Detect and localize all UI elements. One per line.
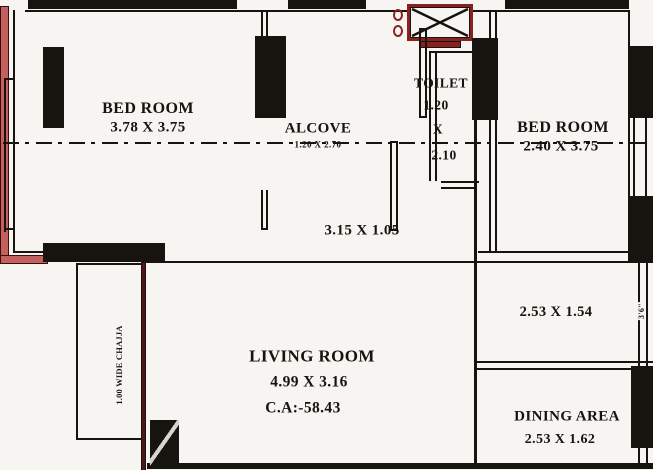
wall-pier-top-3 xyxy=(505,0,629,9)
wall-toilet-right xyxy=(474,120,477,182)
window-cap-bottom xyxy=(4,228,15,230)
chajja-label: 1.00 WIDE CHAJJA xyxy=(115,325,124,404)
door-swing-icon xyxy=(393,25,403,37)
wall-bottom-outer xyxy=(147,463,653,469)
wall-bed2-left-b xyxy=(495,10,497,253)
side-dimension-label: 3'6" xyxy=(638,302,646,320)
wall-alcove-right-upper xyxy=(419,28,421,118)
wall-pier-bed1-alcove xyxy=(255,36,286,118)
wall-cap xyxy=(419,116,427,118)
room-label-toilet: TOILET xyxy=(414,76,468,90)
room-label-dining: DINING AREA xyxy=(514,410,620,425)
wall-pier-top-1 xyxy=(28,0,237,9)
wall-alcove-right-lower-b xyxy=(396,141,398,231)
room-dims-toilet-length: 2.10 xyxy=(431,148,456,162)
wall-bedroom-left-outer xyxy=(13,10,15,253)
entrance-door-pier xyxy=(150,420,179,467)
room-dims-toilet-width: 1.20 xyxy=(423,98,448,112)
wall-pier-dining-right xyxy=(631,366,653,448)
wall-pier-bed2-right-top xyxy=(630,46,653,118)
wall-bed1-alcove-lower xyxy=(261,190,263,230)
wall-bed2-bottom xyxy=(478,251,653,253)
room-dims-dining: 2.53 X 1.62 xyxy=(525,433,596,447)
room-label-bedroom-right: BED ROOM xyxy=(517,120,609,136)
room-dims-bedroom-right: 2.40 X 3.75 xyxy=(523,140,598,155)
room-dims-passage: 3.15 X 1.05 xyxy=(324,224,399,239)
window-bed2-right xyxy=(633,118,635,196)
wall-cap xyxy=(261,228,268,230)
wall-toilet-bottom-b xyxy=(441,187,475,189)
chajja-top-edge xyxy=(76,263,142,265)
wall-pier-top-2 xyxy=(288,0,366,9)
room-dims-store: 2.53 X 1.54 xyxy=(520,305,593,320)
window-bed2-right-b xyxy=(645,118,647,196)
chajja-bottom-edge xyxy=(76,438,142,440)
wall-pier-bedroom-left-bottom xyxy=(43,243,165,262)
room-label-bedroom-left: BED ROOM xyxy=(102,101,194,117)
chajja-left-edge xyxy=(76,263,78,440)
door-swing-icon xyxy=(393,9,403,21)
room-dims-living: 4.99 X 3.16 xyxy=(270,374,348,390)
wall-store-dining-b xyxy=(477,368,653,370)
wall-bed1-alcove-lower-b xyxy=(266,190,268,230)
room-dims-alcove: 1.20 X 2.70 xyxy=(295,141,342,150)
outer-wall-red-bottom-left xyxy=(0,255,48,264)
wardrobe-pier xyxy=(43,47,64,128)
room-label-living: LIVING ROOM xyxy=(249,348,375,365)
wall-bed2-left xyxy=(489,10,491,253)
room-label-alcove: ALCOVE xyxy=(285,122,352,137)
window-cap-top xyxy=(4,78,15,80)
room-dims-toilet-sep: X xyxy=(433,122,443,136)
wall-store-dining xyxy=(477,361,653,363)
room-dims-bedroom-left: 3.78 X 3.75 xyxy=(110,121,185,136)
wall-pier-bed2-right-bottom xyxy=(630,196,653,262)
floor-plan: BED ROOM 3.78 X 3.75 ALCOVE 1.20 X 2.70 … xyxy=(0,0,653,470)
wall-cap xyxy=(419,28,427,30)
wall-living-dining-separator xyxy=(474,181,477,463)
shaft-box xyxy=(407,4,473,41)
room-carpet-area-living: C.A:-58.43 xyxy=(265,400,340,416)
wall-alcove-right-lower xyxy=(390,141,392,231)
wall-living-top xyxy=(141,261,653,263)
window-bedroom-left xyxy=(4,78,6,232)
wall-cap xyxy=(390,141,398,143)
wall-top-outer xyxy=(25,10,630,12)
